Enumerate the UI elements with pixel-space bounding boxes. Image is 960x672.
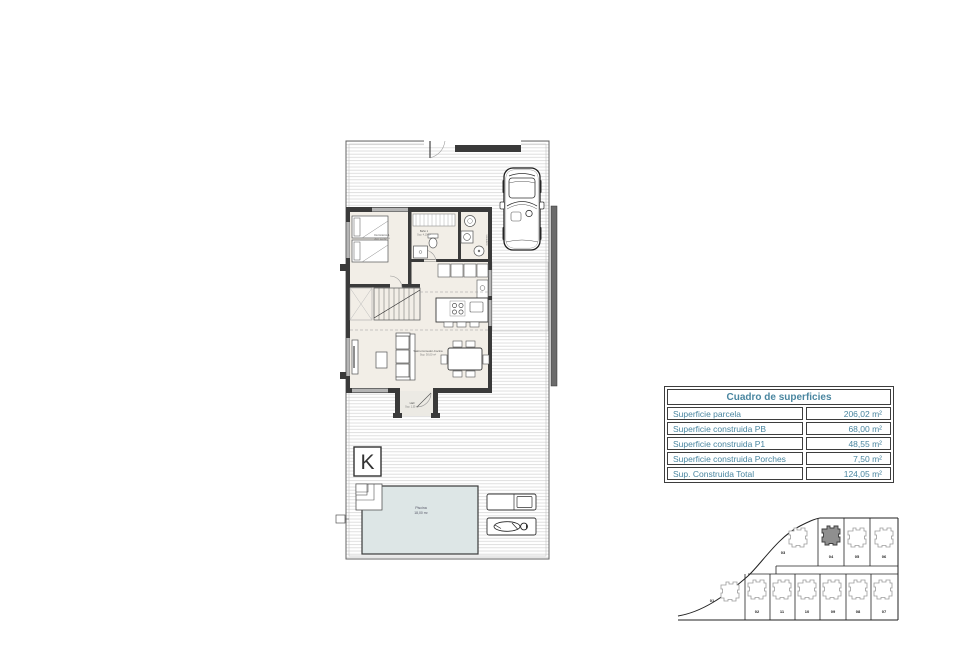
entrance-porch: Hall Sup. 1,35 m² xyxy=(393,388,440,418)
row-value: 7,50 m² xyxy=(806,452,891,465)
pool-name-label: Piscina xyxy=(415,506,427,510)
plot-number: 05 xyxy=(855,554,860,559)
person-icon xyxy=(494,522,528,532)
hall-area-label: Sup. 1,35 m² xyxy=(405,406,419,409)
row-value: 48,55 m² xyxy=(806,437,891,450)
cabinet-row xyxy=(438,264,488,277)
kitchen-counter xyxy=(477,280,488,298)
sofa xyxy=(396,333,415,380)
dining-table xyxy=(448,348,482,370)
k-logo: K xyxy=(354,447,381,476)
table-row: Superficie construida Porches 7,50 m² xyxy=(667,452,891,465)
washing-machine-icon xyxy=(461,231,473,243)
row-label: Superficie construida Porches xyxy=(667,452,803,465)
plot-number: 11 xyxy=(780,609,785,614)
plot-number: 07 xyxy=(882,609,887,614)
floor-plan: Piscina 18,00 m² K xyxy=(330,131,566,567)
house-footprints xyxy=(721,528,893,601)
plot-number: 04 xyxy=(829,554,834,559)
plot-number: 06 xyxy=(882,554,887,559)
house: Dormitorio 1 Sup. 11,90 m² Baño 1 Su xyxy=(346,207,492,418)
laundry-name-label: Lavadero xyxy=(485,235,489,246)
highlighted-house-footprint xyxy=(822,526,840,545)
plot-number: 08 xyxy=(856,609,861,614)
hall-name-label: Hall xyxy=(410,401,415,405)
plot-number: 01 xyxy=(710,598,715,603)
bedroom-area-label: Sup. 11,90 m² xyxy=(374,237,390,241)
table-row: Superficie construida P1 48,55 m² xyxy=(667,437,891,450)
row-label: Superficie parcela xyxy=(667,407,803,420)
plan-sheet: Piscina 18,00 m² K xyxy=(0,0,960,672)
plot-number: 02 xyxy=(755,609,760,614)
plot-number: 10 xyxy=(805,609,810,614)
pool-area-label: 18,00 m² xyxy=(414,511,428,515)
plot-number: 09 xyxy=(831,609,836,614)
pool: Piscina 18,00 m² xyxy=(356,484,478,554)
shower-tray xyxy=(414,246,428,258)
plot-number: 03 xyxy=(781,550,786,555)
row-value: 68,00 m² xyxy=(806,422,891,435)
table-row: Superficie construida PB 68,00 m² xyxy=(667,422,891,435)
row-label: Superficie construida P1 xyxy=(667,437,803,450)
bathroom-area-label: Sup. 4,10 m² xyxy=(417,233,431,236)
living-name-label: Salón-Comedor-Cocina xyxy=(413,349,443,353)
site-plan: 01 02 03 04 05 06 07 08 09 10 11 xyxy=(670,498,902,632)
tv-unit xyxy=(352,340,358,374)
row-label: Superficie construida PB xyxy=(667,422,803,435)
stools xyxy=(444,322,479,327)
sun-lounger-empty xyxy=(487,494,536,510)
table-row: Superficie parcela 206,02 m² xyxy=(667,407,891,420)
neighbour-wall xyxy=(551,206,557,386)
row-label: Sup. Construida Total xyxy=(667,467,803,480)
car-icon xyxy=(500,168,544,250)
table-row: Sup. Construida Total 124,05 m² xyxy=(667,467,891,480)
pool-steps xyxy=(356,484,382,510)
surface-table-header: Cuadro de superficies xyxy=(667,389,891,405)
bathroom-name-label: Baño 1 xyxy=(420,229,429,233)
site-road xyxy=(748,566,898,574)
surface-table: Cuadro de superficies Superficie parcela… xyxy=(664,386,894,483)
row-value: 124,05 m² xyxy=(806,467,891,480)
sliding-gate xyxy=(455,145,521,152)
bedroom-name-label: Dormitorio 1 xyxy=(374,233,390,237)
k-logo-letter: K xyxy=(360,451,374,474)
toilet-icon xyxy=(429,238,437,248)
row-value: 206,02 m² xyxy=(806,407,891,420)
sun-lounger-with-person xyxy=(487,518,536,535)
coffee-table xyxy=(376,352,387,368)
living-area-label: Sup. 30,00 m² xyxy=(420,353,436,357)
